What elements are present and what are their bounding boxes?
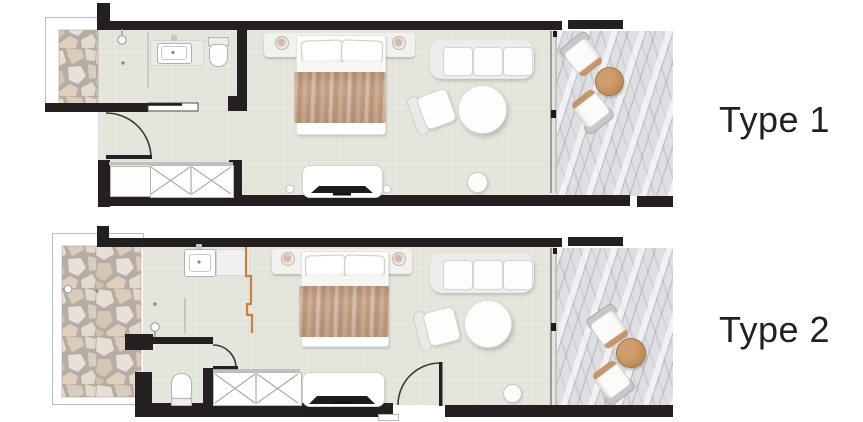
t1-tv [311,186,373,193]
t1-entry-door-arc [106,113,151,157]
t1-sink-drain [171,51,174,54]
t2-sink-drain [197,260,200,263]
t1-entry-door-leaf [106,155,152,159]
t1-speaker-right [383,185,391,193]
t2-entry-door-arc [398,363,440,405]
t1-floor-drain [121,61,125,65]
t1-wardrobe-x-lines [151,166,231,195]
plan-label-type-1: Type 1 [719,100,830,140]
t2-interior-door-arc [213,345,236,368]
t2-wardrobe-x-lines [215,373,298,404]
t2-entry-door-leaf [439,362,443,406]
t2-floor-drain [153,302,157,306]
floorplan-canvas: Type 1 Type 2 [0,0,863,422]
t2-shower-screen [246,247,252,333]
t2-patio-drain [95,289,99,293]
plan-label-type-2: Type 2 [719,310,830,350]
t2-shower-head [151,323,159,331]
t2-interior-door-leaf [213,366,238,369]
t2-tv-stand [331,402,353,404]
t1-shower-head [118,36,126,44]
t2-patio-tap [64,285,72,293]
t1-speaker-left [286,185,294,193]
linework-layer [0,0,863,422]
t1-tv-stand [333,193,351,196]
